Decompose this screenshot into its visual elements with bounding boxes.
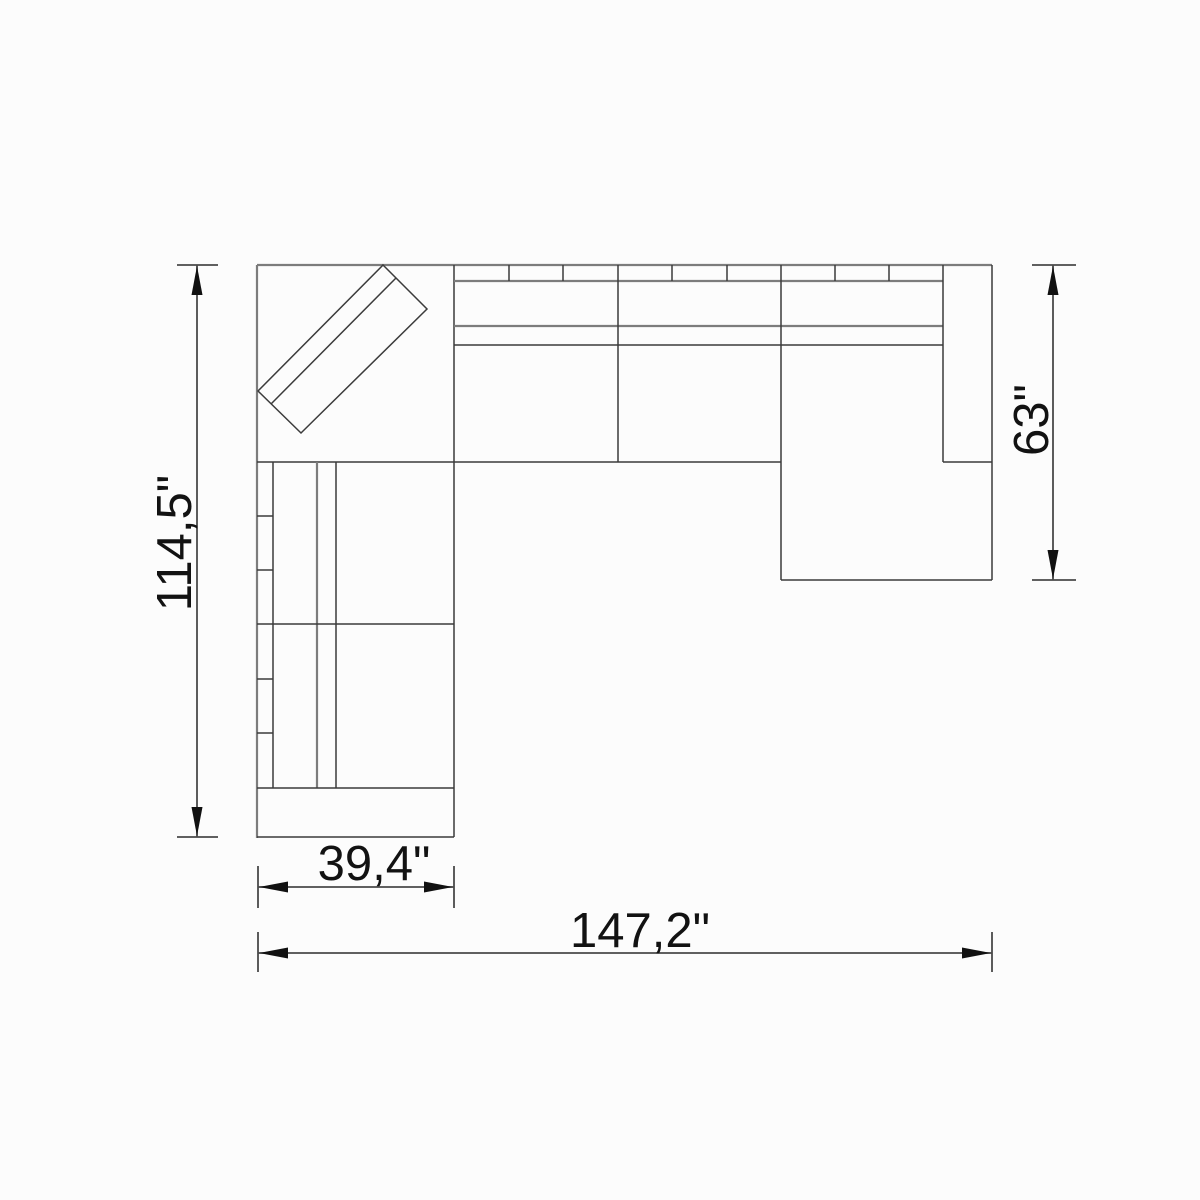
dimension-label-overall-height: 114,5" <box>148 475 202 611</box>
dimension-label-left-section-width: 39,4" <box>318 837 431 891</box>
arrowhead-down-icon <box>192 807 203 836</box>
left-sofa-section <box>257 462 454 788</box>
dimension-label-chaise-depth: 63" <box>1005 384 1059 456</box>
dimension-overall-height: 114,5" <box>148 265 218 837</box>
sofa-dimension-drawing: 114,5" 63" 39,4" 147,2" <box>0 0 1200 1200</box>
diagonal-back-cushion <box>258 265 427 433</box>
dimension-overall-width: 147,2" <box>258 904 992 972</box>
dimension-label-overall-width: 147,2" <box>570 904 710 958</box>
technical-drawing-canvas: 114,5" 63" 39,4" 147,2" <box>0 0 1200 1200</box>
arrowhead-left-icon <box>259 882 288 893</box>
arrowhead-left-icon <box>259 948 288 959</box>
top-sofa-section <box>257 265 992 837</box>
dimension-left-section-width: 39,4" <box>258 837 454 908</box>
diagonal-cushion-seam <box>271 278 396 404</box>
back-cushion-ticks-top <box>509 265 889 281</box>
dimension-chaise-depth: 63" <box>1005 265 1076 580</box>
corner-section <box>258 265 427 433</box>
sofa-outline <box>257 265 992 838</box>
arrowhead-up-icon <box>1048 266 1059 295</box>
arrowhead-right-icon <box>962 948 991 959</box>
arrowhead-up-icon <box>192 266 203 295</box>
arrowhead-down-icon <box>1048 550 1059 579</box>
